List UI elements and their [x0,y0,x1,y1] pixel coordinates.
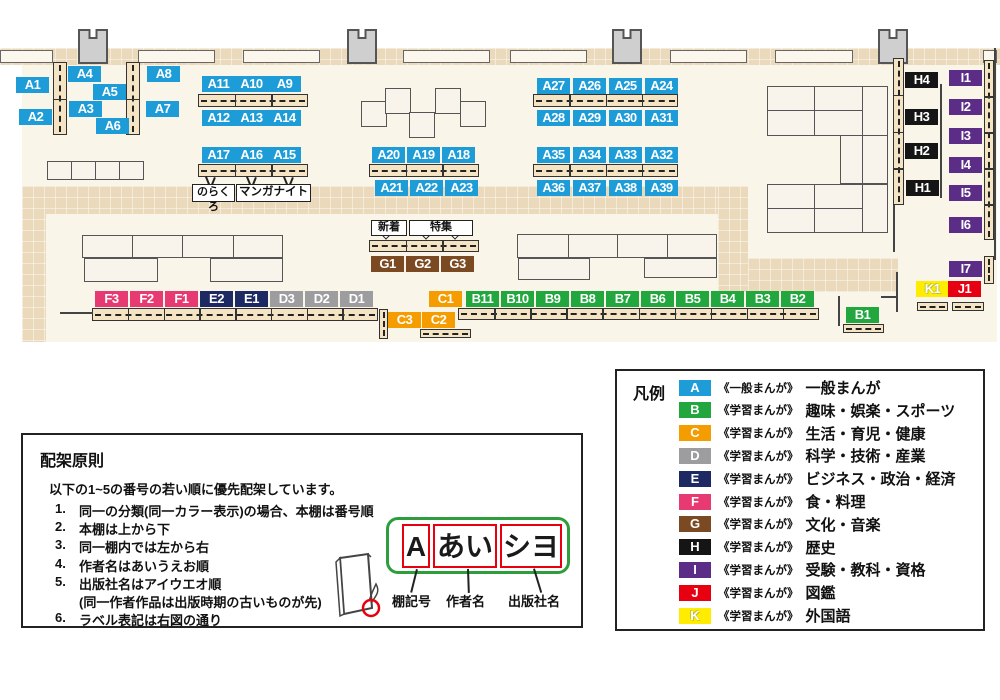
table-block [119,161,144,180]
annotation-norakuro: のらくろ [192,184,235,202]
shelf-label-A9: A9 [268,76,301,92]
table-block [814,86,863,111]
shelf-divider [894,168,903,170]
legend-type-text: 《学習まんが》 [718,608,799,624]
shelf-label-A22: A22 [410,180,443,196]
shelf-label-A10: A10 [235,76,268,92]
annotation-manga-night: マンガナイト [236,184,311,202]
shelf-label-A24: A24 [645,78,678,94]
shelf-divider [494,309,496,319]
shelf-label-A1: A1 [16,77,49,93]
shelf-label-H1: H1 [906,180,939,196]
legend-key-chip-D: D [679,448,711,464]
shelf-dash [372,170,476,172]
legend-row-C: C《学習まんが》生活・育児・健康 [679,425,926,442]
shelf-label-A7: A7 [146,101,179,117]
legend-row-K: K《学習まんが》外国語 [679,607,851,624]
shelf-divider [271,309,273,320]
shelf-dash [988,259,990,281]
shelf-label-H4: H4 [905,72,938,88]
legend-row-I: I《学習まんが》受験・教科・資格 [679,561,926,578]
legend-type-text: 《学習まんが》 [718,448,799,464]
shelf-divider [642,165,644,176]
shelf-divider [639,309,641,319]
shelf-label-H3: H3 [905,109,938,125]
shelf-label-A33: A33 [609,147,642,163]
bookshelf-run [952,302,984,311]
legend-type-text: 《学習まんが》 [718,494,799,510]
shelf-divider [894,95,903,97]
shelf-label-E1: E1 [235,291,268,307]
shelf-label-A38: A38 [609,180,642,196]
table-block [862,135,888,184]
legend-category-label: 文化・音楽 [806,514,881,535]
shelf-label-D3: D3 [270,291,303,307]
bookshelf-run-vertical [53,62,67,135]
shelf-label-A19: A19 [407,147,440,163]
legend-type-text: 《学習まんが》 [718,425,799,441]
rule-number: 3. [55,537,75,556]
legend-row-G: G《学習まんが》文化・音楽 [679,516,881,533]
pillar [612,29,642,64]
shelf-label-A21: A21 [375,180,408,196]
legend-category-label: ビジネス・政治・経済 [806,468,956,489]
rule-item: 1.同一の分類(同一カラー表示)の場合、本棚は番号順 [55,501,374,520]
pillar [78,29,108,64]
bookshelf-run [420,329,471,338]
wall-counter [510,50,587,63]
legend-type-text: 《学習まんが》 [718,562,799,578]
shelf-label-A3: A3 [69,101,102,117]
shelf-divider [342,309,344,320]
rule-number: 2. [55,519,75,538]
shelf-divider [199,309,201,320]
shelf-label-B8: B8 [571,291,604,307]
legend-category-label: 科学・技術・産業 [806,445,926,466]
shelf-label-A6: A6 [96,118,129,134]
legend-key-chip-G: G [679,516,711,532]
table-block [409,112,435,138]
shelf-label-C1: C1 [429,291,462,307]
shelf-divider [235,309,237,320]
shelf-label-A8: A8 [147,66,180,82]
table-block [767,110,815,136]
shelf-label-A13: A13 [235,110,268,126]
table-block [568,234,618,258]
shelf-divider [54,99,66,101]
table-block [518,258,590,280]
walkway-band [748,258,898,292]
shelf-dash [201,100,305,102]
shelf-divider [442,241,444,251]
shelf-label-F2: F2 [130,291,163,307]
shelf-label-F1: F1 [165,291,198,307]
legend-type-text: 《学習まんが》 [718,516,799,532]
bookshelf-run [458,308,819,320]
table-block [182,235,234,258]
legend-key-chip-H: H [679,539,711,555]
shelf-label-A2: A2 [19,109,52,125]
table-block [617,234,668,258]
shelf-label-B9: B9 [536,291,569,307]
table-block [814,184,863,209]
legend-type-text: 《学習まんが》 [718,471,799,487]
shelf-label-A31: A31 [645,110,678,126]
legend-key-chip-F: F [679,494,711,510]
shelf-dash [383,312,385,336]
shelf-label-A35: A35 [537,147,570,163]
bookshelf-run-vertical [984,256,994,284]
shelf-label-D2: D2 [305,291,338,307]
legend-title: 凡例 [633,380,665,404]
rule-item: 3.同一棚内では左から右 [55,537,209,556]
shelf-label-C2: C2 [422,312,455,328]
shelf-divider [307,309,309,320]
shelf-divider [406,241,408,251]
shelf-label-A4: A4 [68,66,101,82]
rule-number: 4. [55,556,75,575]
wall-counter [243,50,320,63]
floor-map-page: A1A2A4A5A3A6A8A7A11A10A9A12A13A14A17A16A… [0,0,1000,700]
wall-segment [940,84,942,198]
rule-number: 1. [55,501,75,520]
rule-text: 作者名はあいうえお順 [79,556,209,575]
shelf-label-I2: I2 [949,99,982,115]
wall-counter [138,50,215,63]
spine-callout-text: 作者名 [446,591,485,610]
shelf-label-A17: A17 [202,147,235,163]
bookshelf-run-vertical [893,58,904,205]
table-block [644,258,717,278]
shelf-label-E2: E2 [200,291,233,307]
table-block [132,235,183,258]
table-block [862,86,888,136]
shelf-label-A18: A18 [442,147,475,163]
rule-text: 同一の分類(同一カラー表示)の場合、本棚は番号順 [79,501,374,520]
shelf-label-I5: I5 [949,185,982,201]
legend-row-E: E《学習まんが》ビジネス・政治・経済 [679,470,956,487]
shelf-label-A25: A25 [609,78,642,94]
legend-row-F: F《学習まんが》食・料理 [679,493,866,510]
table-block [460,101,486,127]
shelf-label-A26: A26 [573,78,606,94]
legend-type-text: 《学習まんが》 [718,402,799,418]
legend-row-A: A《一般まんが》一般まんが [679,379,881,396]
legend-category-label: 一般まんが [806,377,881,398]
walkway-band [718,186,748,292]
legend-category-label: 受験・教科・資格 [806,559,926,580]
shelf-divider [235,95,237,106]
legend-category-label: 食・料理 [806,491,866,512]
rule-note-line: (同一作者作品は出版時期の古いものが先) [55,592,322,611]
table-block [667,234,717,258]
wall-counter [403,50,490,63]
shelf-divider [271,165,273,176]
bookshelf-run-vertical [379,309,388,339]
pillar-notch [623,29,632,39]
shelf-label-A11: A11 [202,76,235,92]
book-illustration [326,549,386,619]
table-block [71,161,96,180]
shelf-dash [201,170,305,172]
shelf-divider [530,309,532,319]
shelf-divider [711,309,713,319]
table-block [47,161,72,180]
bookshelf-run [198,164,308,177]
shelf-dash [423,333,468,335]
legend-type-text: 《一般まんが》 [718,380,799,396]
shelf-label-D1: D1 [340,291,373,307]
table-block [517,234,569,258]
shelf-label-B4: B4 [711,291,744,307]
shelf-divider [985,96,993,98]
legend-row-D: D《学習まんが》科学・技術・産業 [679,447,926,464]
pillar-notch [89,29,98,39]
annotation-feature: 特集 [409,220,473,236]
rule-text: 本棚は上から下 [79,519,170,538]
rule-text: 出版社名はアイウエオ順 [79,574,221,593]
bookshelf-run [843,324,884,333]
legend-key-chip-E: E [679,471,711,487]
shelf-label-K1: K1 [916,281,949,297]
table-block [840,135,864,184]
wall-counter [775,50,853,63]
shelf-divider [235,165,237,176]
shelf-label-A32: A32 [645,147,678,163]
legend-type-text: 《学習まんが》 [718,585,799,601]
legend-row-H: H《学習まんが》歴史 [679,539,836,556]
table-block [233,235,283,258]
shelf-label-I6: I6 [949,217,982,233]
rule-number: 5. [55,574,75,593]
shelf-label-G1: G1 [371,256,404,272]
shelf-label-F3: F3 [95,291,128,307]
bookshelf-run [533,94,678,107]
shelf-divider [747,309,749,319]
table-block [361,101,387,127]
shelf-label-I3: I3 [949,128,982,144]
shelf-dash [920,306,945,308]
shelf-divider [127,99,139,101]
legend-key-chip-K: K [679,608,711,624]
shelf-label-A15: A15 [268,147,301,163]
shelf-divider [569,165,571,176]
legend-category-label: 外国語 [806,605,851,626]
shelf-label-G3: G3 [441,256,474,272]
bookshelf-run [533,164,678,177]
shelf-label-A39: A39 [645,180,678,196]
shelf-dash [955,306,981,308]
wall-counter [0,50,53,63]
shelf-label-A23: A23 [445,180,478,196]
shelf-label-B11: B11 [466,291,499,307]
shelf-dash [372,245,476,247]
shelf-divider [602,309,604,319]
shelf-divider [164,309,166,320]
shelf-divider [271,95,273,106]
table-block [95,161,120,180]
legend-category-label: 趣味・娯楽・スポーツ [806,400,956,421]
shelf-label-B10: B10 [501,291,534,307]
spine-callout-text: 出版社名 [508,591,560,610]
shelf-label-A16: A16 [235,147,268,163]
spine-callout-text: 棚記号 [392,591,431,610]
shelving-rules-intro: 以下の1~5の番号の若い順に優先配架しています。 [49,479,342,498]
shelf-divider [569,95,571,106]
shelf-divider [606,95,608,106]
legend-panel: 凡例 A《一般まんが》一般まんがB《学習まんが》趣味・娯楽・スポーツC《学習まん… [615,369,985,631]
legend-key-chip-J: J [679,585,711,601]
bookshelf-run [198,94,308,107]
rule-note-text: (同一作者作品は出版時期の古いものが先) [55,592,322,611]
shelf-label-J1: J1 [948,281,981,297]
table-block [862,184,888,233]
legend-category-label: 図鑑 [806,582,836,603]
pillar [347,29,377,64]
rule-text: ラベル表記は右図の通り [79,610,222,629]
shelf-label-I4: I4 [949,157,982,173]
shelf-divider [675,309,677,319]
wall-segment [838,296,840,326]
shelf-label-I1: I1 [949,70,982,86]
rule-item: 4.作者名はあいうえお順 [55,556,209,575]
wall-segment [994,48,996,260]
table-block [767,184,815,209]
shelf-label-A14: A14 [268,110,301,126]
legend-category-label: 歴史 [806,537,836,558]
walkway-band [22,186,46,342]
shelf-divider [442,165,444,176]
shelf-label-A36: A36 [537,180,570,196]
shelf-dash [846,328,881,330]
table-block [435,88,461,114]
table-block [84,258,158,282]
wall-counter [670,50,747,63]
shelf-divider [566,309,568,319]
legend-row-J: J《学習まんが》図鑑 [679,584,836,601]
bookshelf-run-vertical [984,60,994,240]
shelf-divider [606,165,608,176]
table-block [814,208,863,233]
legend-type-text: 《学習まんが》 [718,539,799,555]
bookshelf-run [369,164,479,177]
shelf-label-C3: C3 [388,312,421,328]
shelf-label-H2: H2 [905,143,938,159]
shelf-divider [985,204,993,206]
rule-item: 5.出版社名はアイウエオ順 [55,574,221,593]
table-block [814,110,863,136]
rule-item: 2.本棚は上から下 [55,519,170,538]
shelf-label-A29: A29 [573,110,606,126]
wall-segment [896,272,898,312]
rule-text: 同一棚内では左から右 [79,537,209,556]
bookshelf-run [92,308,378,321]
legend-key-chip-B: B [679,402,711,418]
legend-row-B: B《学習まんが》趣味・娯楽・スポーツ [679,402,955,419]
shelf-label-B2: B2 [781,291,814,307]
legend-key-chip-C: C [679,425,711,441]
legend-category-label: 生活・育児・健康 [806,423,926,444]
table-block [385,88,411,114]
shelf-divider [783,309,785,319]
shelf-label-A20: A20 [372,147,405,163]
table-block [210,258,283,282]
shelf-label-A27: A27 [537,78,570,94]
shelf-label-G2: G2 [406,256,439,272]
shelf-label-A28: A28 [537,110,570,126]
shelf-label-B7: B7 [606,291,639,307]
table-block [767,208,815,233]
bookshelf-run [917,302,948,311]
spine-label-author: あい [433,524,497,568]
shelf-label-A5: A5 [93,84,126,100]
rule-number: 6. [55,610,75,629]
shelf-divider [642,95,644,106]
rule-item: 6.ラベル表記は右図の通り [55,610,222,629]
annotation-new-arrivals: 新着 [371,220,407,236]
shelf-divider [894,132,903,134]
table-block [82,235,133,258]
shelf-label-B5: B5 [676,291,709,307]
pillar-notch [889,29,898,39]
shelf-label-A34: A34 [573,147,606,163]
shelf-label-A12: A12 [202,110,235,126]
shelf-dash [988,63,990,237]
shelf-divider [985,168,993,170]
spine-label-shelf-code: A [402,524,430,568]
shelf-label-B6: B6 [641,291,674,307]
table-block [767,86,815,111]
wall-segment [893,205,895,252]
wall-segment [881,296,896,298]
wall-segment [60,312,93,314]
shelf-divider [406,165,408,176]
shelf-divider [128,309,130,320]
pillar-notch [358,29,367,39]
shelf-label-A30: A30 [609,110,642,126]
shelf-label-B1: B1 [846,307,879,323]
bookshelf-run [369,240,479,252]
shelving-rules-title: 配架原則 [40,447,104,471]
legend-key-chip-A: A [679,380,711,396]
shelf-label-I7: I7 [949,261,982,277]
shelf-divider [985,132,993,134]
shelf-label-B3: B3 [746,291,779,307]
legend-key-chip-I: I [679,562,711,578]
spine-label-publisher: シヨ [500,524,562,568]
shelf-label-A37: A37 [573,180,606,196]
